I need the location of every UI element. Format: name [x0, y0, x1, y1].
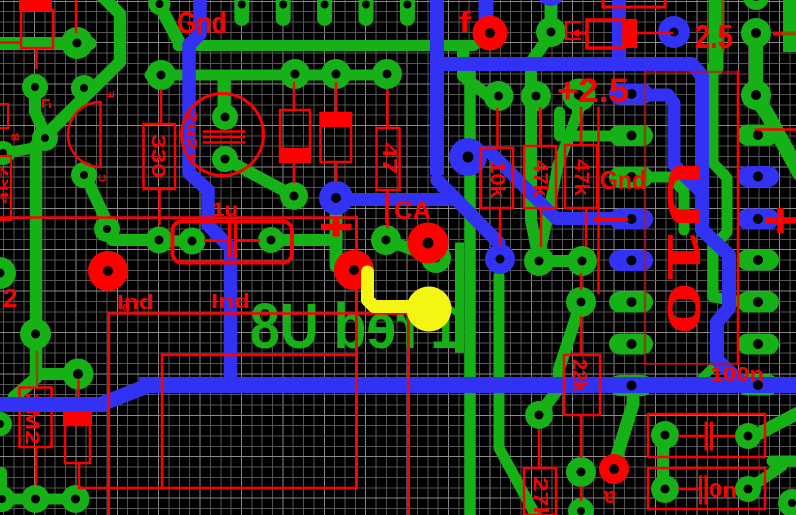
svg-text:330: 330	[147, 134, 168, 178]
svg-text:Gnd: Gnd	[600, 165, 646, 195]
svg-text:B: B	[10, 133, 22, 141]
svg-text:E: E	[105, 91, 117, 98]
svg-text:100n: 100n	[710, 364, 764, 386]
svg-text:d: d	[122, 299, 130, 314]
svg-text:47: 47	[378, 142, 399, 174]
svg-text:2: 2	[3, 283, 17, 313]
svg-text:2u2+: 2u2+	[183, 110, 200, 164]
svg-text:+2.5: +2.5	[557, 72, 629, 110]
svg-text:a: a	[603, 486, 616, 511]
svg-text:Ind: Ind	[211, 291, 250, 313]
svg-text:C: C	[97, 174, 109, 182]
svg-text:47k: 47k	[570, 159, 592, 197]
svg-text:10k: 10k	[486, 161, 508, 199]
svg-text:Gnd: Gnd	[177, 5, 227, 40]
svg-text:U10: U10	[658, 160, 710, 335]
svg-text:2.5: 2.5	[695, 18, 733, 55]
svg-text:f: f	[459, 6, 472, 39]
svg-text:1u: 1u	[212, 200, 238, 221]
svg-text:47k: 47k	[529, 160, 551, 198]
svg-text:27k: 27k	[529, 477, 551, 515]
svg-text:CA: CA	[394, 195, 431, 225]
svg-text:4k7: 4k7	[0, 166, 11, 204]
svg-text:22k: 22k	[568, 359, 590, 393]
svg-text:0n: 0n	[709, 480, 737, 502]
